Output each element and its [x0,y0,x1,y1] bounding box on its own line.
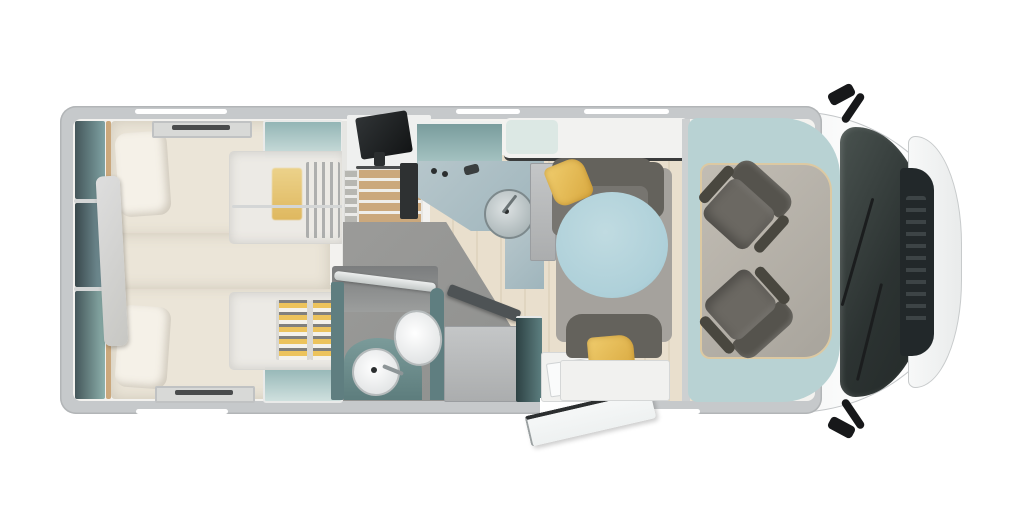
roof-window-strip [584,109,669,114]
wardrobe-shelf-line [232,205,343,208]
hanging-clothes [306,162,340,238]
skylight-glass [175,390,233,395]
wardrobe-shelves-contents [276,300,310,360]
tv-bracket [374,152,385,166]
hob-knob [442,171,448,177]
basin-drain [371,367,377,373]
rear-shelf-bottom [75,291,105,399]
washroom-cabinet [444,326,518,402]
bathroom-wall-left [331,282,344,400]
hob-knob [431,168,437,174]
tall-cabinet-by-door [516,316,542,402]
folded-clothes-yellow [272,168,302,220]
kitchen-sink [484,189,534,239]
dinette-round-table [556,192,668,298]
cooker-unit [400,163,418,219]
skylight-glass [172,125,230,130]
grille-slats [906,196,926,328]
motorhome-floorplan [0,0,1024,524]
dinette-overhead-locker-glass [506,120,558,154]
roof-window-strip [136,409,228,414]
kitchen-overhead-locker [417,121,502,166]
roof-window-strip [456,109,520,114]
pillow-top-bed [114,130,172,217]
bench-bottom-seatbox [560,360,670,401]
roof-window-strip [135,109,227,114]
